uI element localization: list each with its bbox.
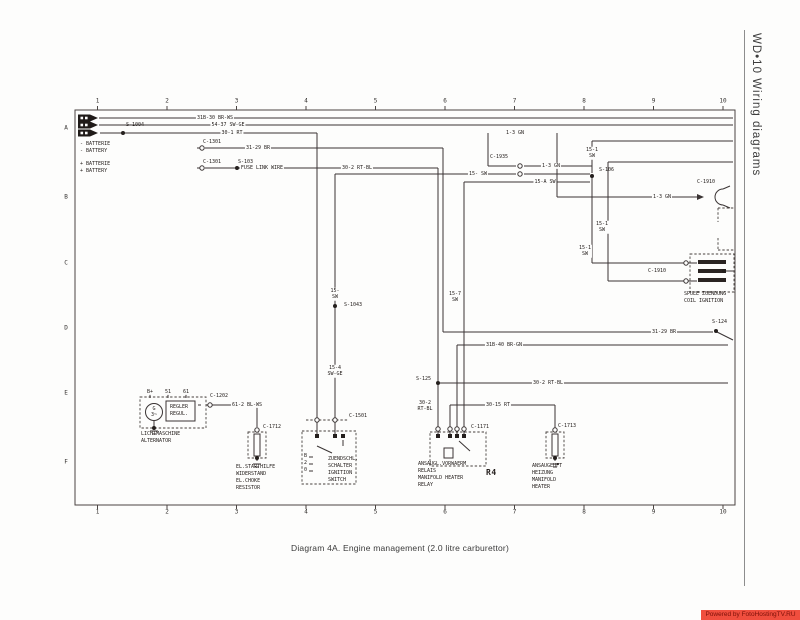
splice-s125-label: S-125 bbox=[416, 376, 431, 382]
regulator-label-en: REGUL. bbox=[170, 411, 188, 417]
relay-code-r4: R4 bbox=[486, 468, 497, 478]
connector-c1301-b-label: C-1301 bbox=[203, 159, 221, 165]
manifold-heater-label-en2: HEATER bbox=[532, 484, 550, 490]
wire-label-15-1-b: 15-1 SW bbox=[595, 221, 609, 234]
grid-row-label: A bbox=[64, 125, 68, 132]
alternator-terminal-61: 61 bbox=[182, 389, 190, 395]
wire-label-30-1: 30-1 RT bbox=[220, 130, 243, 136]
wire-label-15-1-c: 15-1 SW bbox=[578, 245, 592, 258]
wire-label-30-2-c: 30-2 RT-BL bbox=[416, 400, 433, 413]
wiring-diagram-canvas bbox=[0, 0, 800, 620]
connector-c1501-label: C-1501 bbox=[349, 413, 367, 419]
harness-plug-icons bbox=[78, 115, 98, 137]
switch-pos-b: B bbox=[304, 453, 307, 459]
grid-col-label-top: 6 bbox=[443, 98, 447, 105]
wire-lines bbox=[99, 118, 734, 471]
grid-col-label-top: 1 bbox=[96, 98, 100, 105]
alternator-terminal-bplus: B+ bbox=[146, 389, 154, 395]
watermark-banner: Powered by FotoHostingTV.RU bbox=[701, 610, 800, 620]
connector-c1935-label: C-1935 bbox=[490, 154, 508, 160]
grid-col-label-top: 9 bbox=[652, 98, 656, 105]
connector-c1713-label: C-1713 bbox=[558, 423, 576, 429]
ignition-switch-label-en2: SWITCH bbox=[328, 477, 346, 483]
battery-pos-label-de: + BATTERIE bbox=[80, 161, 110, 167]
manifold-heater-label-de2: HEIZUNG bbox=[532, 470, 553, 476]
wire-label-1-3gn-c: 1-3 GN bbox=[652, 194, 672, 200]
choke-resistor-label-2: WIDERSTAND bbox=[236, 471, 266, 477]
grid-col-label-bottom: 6 bbox=[443, 509, 447, 516]
grid-col-label-bottom: 10 bbox=[719, 509, 726, 516]
ignition-switch-label-de2: SCHALTER bbox=[328, 463, 352, 469]
connector-c1910-a-label: C-1910 bbox=[697, 179, 715, 185]
splice-s1004-label: S-1004 bbox=[126, 122, 144, 128]
connector-c1171-label: C-1171 bbox=[471, 424, 489, 430]
splice-s106-label: S-106 bbox=[599, 167, 614, 173]
alternator-label-en: ALTERNATOR bbox=[141, 438, 171, 444]
battery-neg-label-en: - BATTERY bbox=[80, 148, 107, 154]
grid-col-label-top: 8 bbox=[582, 98, 586, 105]
terminal-squares bbox=[315, 434, 466, 438]
wire-label-15-4: 15-4 SW-GE bbox=[326, 365, 343, 378]
wire-label-31b-30: 31B-30 BR-WS bbox=[196, 115, 234, 121]
battery-neg-label-de: - BATTERIE bbox=[80, 141, 110, 147]
switch-pos-0: 0 bbox=[304, 467, 307, 473]
grid-row-label: C bbox=[64, 260, 68, 267]
grid-col-label-bottom: 1 bbox=[96, 509, 100, 516]
regulator-label-de: REGLER bbox=[170, 404, 188, 410]
grid-col-label-top: 10 bbox=[719, 98, 726, 105]
wire-arrowhead bbox=[697, 194, 704, 200]
grid-row-label: F bbox=[64, 459, 68, 466]
component-outlines bbox=[140, 208, 734, 484]
ignition-switch-label-de1: ZUENDSCHL. bbox=[328, 456, 358, 462]
grid-row-label: D bbox=[64, 325, 68, 332]
splice-s103-label: S-103 bbox=[238, 159, 253, 165]
grid-col-label-top: 2 bbox=[165, 98, 169, 105]
grid-col-label-bottom: 9 bbox=[652, 509, 656, 516]
splice-s1043-label: S-1043 bbox=[344, 302, 362, 308]
wire-label-30-15: 30-15 RT bbox=[485, 402, 511, 408]
wire-label-15-sw-2: 15- SW bbox=[329, 288, 340, 301]
wire-label-15-1-a: 15-1 SW bbox=[585, 147, 599, 160]
wire-label-31-29-b: 31-29 BR bbox=[651, 329, 677, 335]
alternator-label-de: LICHTMASCHINE bbox=[141, 431, 180, 437]
generator-3phase-symbol: 3~ bbox=[150, 412, 158, 418]
connector-c1910-shell bbox=[715, 189, 723, 205]
battery-pos-label-en: + BATTERY bbox=[80, 168, 107, 174]
wire-label-1-3gn-b: 1-3 GN bbox=[541, 163, 561, 169]
grid-row-label: B bbox=[64, 194, 68, 201]
wire-label-30-2-b: 30-2 RT-BL bbox=[532, 380, 564, 386]
relay-label-en1: MANIFOLD HEATER bbox=[418, 475, 463, 481]
manifold-heater-label-de1: ANSAUGLUFT bbox=[532, 463, 562, 469]
wire-label-31b-40: 31B-40 BR-GN bbox=[485, 342, 523, 348]
scanned-manual-page: 31B-30 BR-WS 54-37 SW-GE 30-1 RT 31-29 B… bbox=[0, 0, 800, 620]
wire-label-1-3gn-a: 1-3 GN bbox=[505, 130, 525, 136]
choke-resistor-label-4: RESISTOR bbox=[236, 485, 260, 491]
wire-label-15-7: 15-7 SW bbox=[448, 291, 462, 304]
manifold-heater-label-en1: MANIFOLD bbox=[532, 477, 556, 483]
diagram-frame bbox=[75, 106, 735, 509]
switch-pos-2: 2 bbox=[304, 460, 307, 466]
ignition-switch-label-en1: IGNITION bbox=[328, 470, 352, 476]
page-divider-line bbox=[744, 30, 745, 586]
relay-symbol bbox=[444, 441, 470, 458]
grid-col-label-top: 4 bbox=[304, 98, 308, 105]
alternator-terminal-51: 51 bbox=[164, 389, 172, 395]
connector-c1301-a-label: C-1301 bbox=[203, 139, 221, 145]
choke-resistor-label-1: EL.STARTHILFE bbox=[236, 464, 275, 470]
wire-label-fuse-link: FUSE LINK WIRE bbox=[240, 165, 284, 171]
grid-col-label-bottom: 8 bbox=[582, 509, 586, 516]
connector-c1910-b-label: C-1910 bbox=[648, 268, 666, 274]
connector-pins bbox=[200, 146, 688, 432]
wire-label-15-sw: 15- SW bbox=[468, 171, 488, 177]
grid-col-label-bottom: 3 bbox=[235, 509, 239, 516]
relay-label-de1: ANSAUGL.VORWAERM bbox=[418, 461, 466, 467]
grid-col-label-top: 3 bbox=[235, 98, 239, 105]
wire-label-54-37: 54-37 SW-GE bbox=[210, 122, 245, 128]
relay-label-en2: RELAY bbox=[418, 482, 433, 488]
wire-label-15a-sw: 15-A SW bbox=[533, 179, 556, 185]
wire-label-30-2-a: 30-2 RT-BL bbox=[341, 165, 373, 171]
ignition-coil-symbol bbox=[698, 260, 726, 282]
wire-label-31-29: 31-29 BR bbox=[245, 145, 271, 151]
grid-col-label-top: 5 bbox=[374, 98, 378, 105]
grid-col-label-bottom: 5 bbox=[374, 509, 378, 516]
coil-label-en: COIL IGNITION bbox=[684, 298, 723, 304]
relay-label-de2: RELAIS bbox=[418, 468, 436, 474]
grid-col-label-top: 7 bbox=[513, 98, 517, 105]
grid-col-label-bottom: 2 bbox=[165, 509, 169, 516]
connector-c1712-label: C-1712 bbox=[263, 424, 281, 430]
resistor-symbols bbox=[254, 434, 558, 456]
connector-c1202-label: C-1202 bbox=[210, 393, 228, 399]
grid-row-label: E bbox=[64, 390, 68, 397]
splice-s124-label: S-124 bbox=[712, 319, 727, 325]
choke-resistor-label-3: EL.CHOKE bbox=[236, 478, 260, 484]
wire-label-61-2: 61-2 BL-WS bbox=[231, 402, 263, 408]
coil-label-de: SPULE ZUENDUNG bbox=[684, 291, 726, 297]
page-caption: Diagram 4A. Engine management (2.0 litre… bbox=[200, 543, 600, 553]
grid-col-label-bottom: 4 bbox=[304, 509, 308, 516]
sidebar-section-title: WD•10 Wiring diagrams bbox=[750, 33, 762, 176]
grid-col-label-bottom: 7 bbox=[513, 509, 517, 516]
